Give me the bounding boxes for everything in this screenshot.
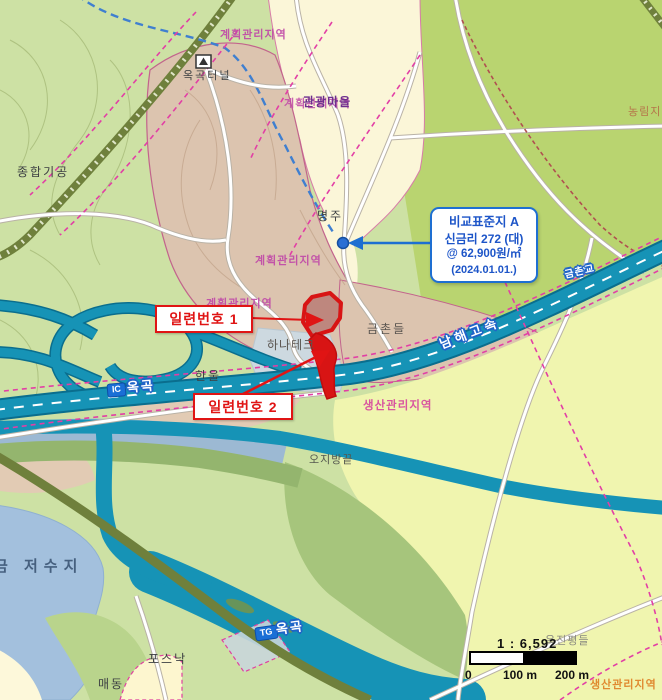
- standard-lot-line1: 비교표준지 A: [436, 214, 532, 231]
- map-graphics: [0, 0, 662, 700]
- standard-lot-line3: @ 62,900원/㎡: [436, 247, 532, 263]
- map-canvas[interactable]: 계획관리지역 옥곡터널 종합기공 계획관리지역 관광마을 농림지역 명주 계획관…: [0, 0, 662, 700]
- scale-ratio: 1 : 6,592: [497, 636, 557, 651]
- scale-tick-200: 200 m: [555, 668, 589, 682]
- callout-standard-lot: 비교표준지 A 신금리 272 (대) @ 62,900원/㎡ (2024.01…: [430, 207, 538, 283]
- scale-bar-black-half: [523, 653, 575, 663]
- contours-forest: [0, 20, 130, 400]
- standard-lot-line4: (2024.01.01.): [436, 263, 532, 278]
- standard-lot-line2: 신금리 272 (대): [436, 231, 532, 247]
- scale-bar: [469, 651, 577, 665]
- scale-tick-0: 0: [465, 668, 472, 682]
- callout-serial-2: 일련번호 2: [193, 393, 293, 420]
- scale-tick-100: 100 m: [503, 668, 537, 682]
- callout-serial-1: 일련번호 1: [155, 305, 253, 333]
- ic-badge: IC: [106, 382, 126, 397]
- tunnel-icon: [196, 55, 211, 68]
